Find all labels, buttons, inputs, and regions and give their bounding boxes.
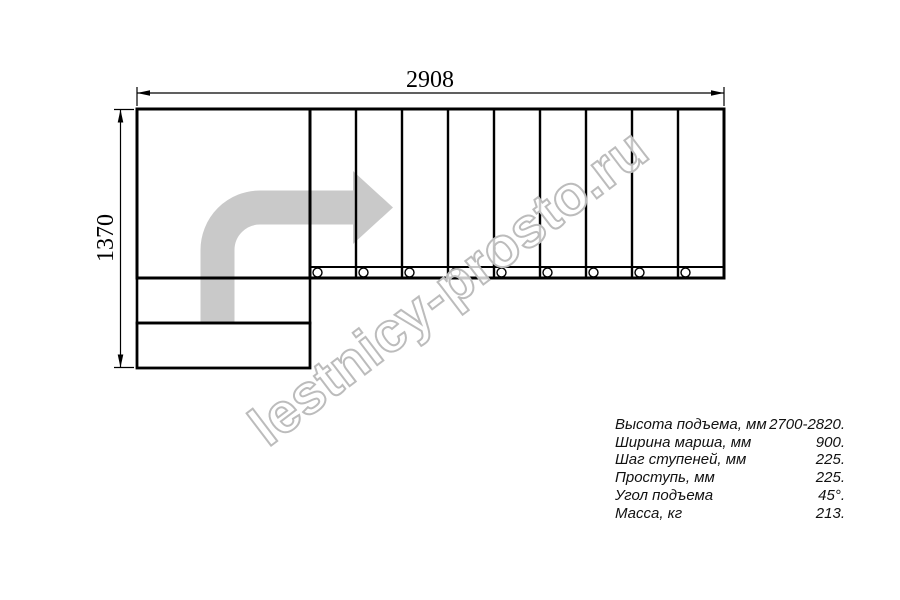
spec-label: Шаг ступеней, мм xyxy=(615,451,746,469)
bottom-step-2 xyxy=(137,323,310,368)
spec-row-step-pitch: Шаг ступеней, мм 225. xyxy=(615,451,845,469)
spec-value: 225. xyxy=(816,451,845,469)
height-dimension-label: 1370 xyxy=(93,214,119,262)
dimension-height: 1370 xyxy=(93,110,134,368)
spec-label: Проступь, мм xyxy=(615,469,715,487)
baluster-circle xyxy=(313,268,322,277)
spec-label: Угол подъема xyxy=(615,487,713,505)
spec-label: Масса, кг xyxy=(615,505,682,523)
spec-table: Высота подъема, мм 2700-2820. Ширина мар… xyxy=(615,416,845,522)
spec-value: 225. xyxy=(816,469,845,487)
baluster-circle xyxy=(589,268,598,277)
walk-direction-arrow xyxy=(218,171,394,324)
baluster-circle xyxy=(543,268,552,277)
dim-arrow-left-icon xyxy=(137,90,150,96)
staircase-drawing-canvas: 2908 1370 lestnicy-prosto.ru Высота подъ… xyxy=(0,0,900,600)
dim-arrow-down-icon xyxy=(118,355,124,368)
spec-row-angle: Угол подъема 45°. xyxy=(615,487,845,505)
spec-value: 2700-2820. xyxy=(769,416,845,434)
dimension-width: 2908 xyxy=(137,67,724,106)
spec-row-flight-width: Ширина марша, мм 900. xyxy=(615,434,845,452)
dim-arrow-up-icon xyxy=(118,110,124,123)
baluster-circle xyxy=(635,268,644,277)
spec-value: 213. xyxy=(816,505,845,523)
spec-row-mass: Масса, кг 213. xyxy=(615,505,845,523)
arrow-head-icon xyxy=(353,171,393,244)
arrow-shaft xyxy=(218,208,355,325)
spec-row-tread-depth: Проступь, мм 225. xyxy=(615,469,845,487)
spec-label: Высота подъема, мм xyxy=(615,416,767,434)
baluster-circle xyxy=(359,268,368,277)
spec-label: Ширина марша, мм xyxy=(615,434,751,452)
dim-arrow-right-icon xyxy=(711,90,724,96)
spec-value: 45°. xyxy=(818,487,845,505)
spec-row-height: Высота подъема, мм 2700-2820. xyxy=(615,416,845,434)
baluster-circle xyxy=(681,268,690,277)
spec-value: 900. xyxy=(816,434,845,452)
width-dimension-label: 2908 xyxy=(406,67,454,93)
